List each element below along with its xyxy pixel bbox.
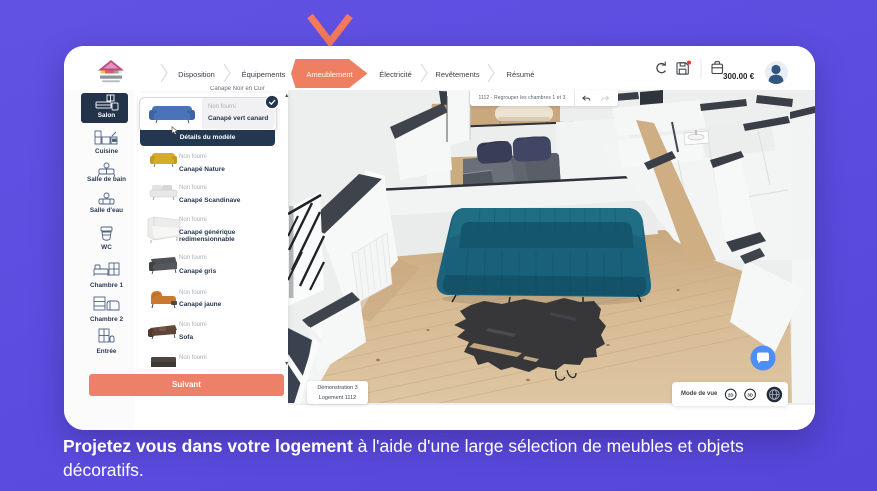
- svg-text:2D: 2D: [728, 392, 733, 397]
- svg-text:3D: 3D: [747, 392, 752, 397]
